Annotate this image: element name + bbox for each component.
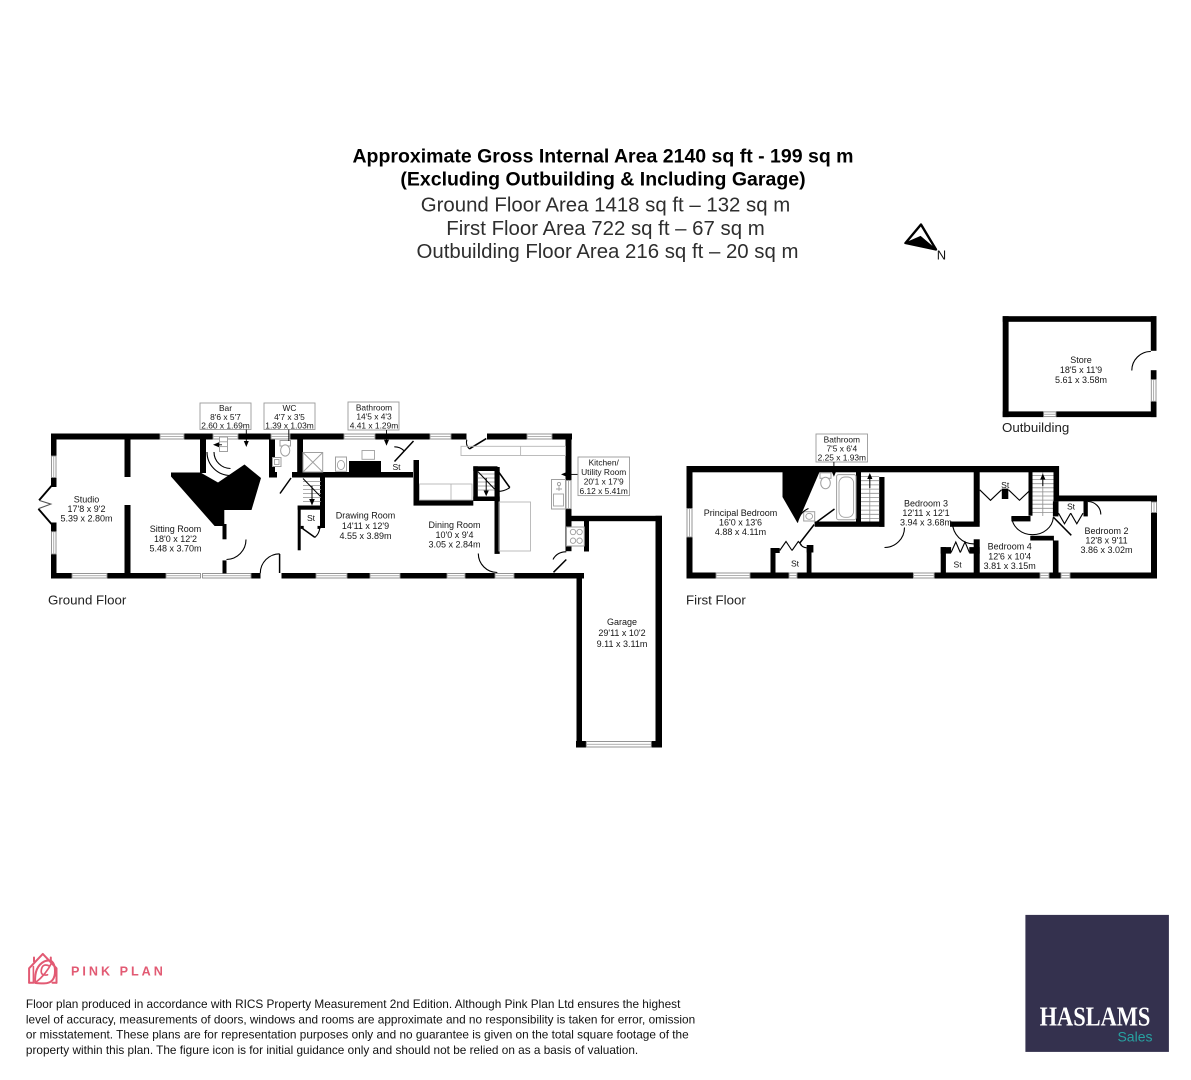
svg-text:Store: Store [1070,355,1092,365]
svg-text:St: St [1067,502,1076,512]
svg-text:2.60 x 1.69m: 2.60 x 1.69m [201,421,249,431]
svg-text:10'0 x 9'4: 10'0 x 9'4 [436,530,474,540]
svg-text:5.39 x 2.80m: 5.39 x 2.80m [60,514,112,524]
svg-text:Ground Floor Area 1418 sq ft –: Ground Floor Area 1418 sq ft – 132 sq m [421,195,791,217]
svg-text:2.25 x 1.93m: 2.25 x 1.93m [818,452,866,462]
svg-text:3.81 x 3.15m: 3.81 x 3.15m [984,561,1036,571]
svg-text:First Floor: First Floor [686,593,746,608]
svg-text:5.48 x 3.70m: 5.48 x 3.70m [149,543,201,553]
svg-text:6.12 x 5.41m: 6.12 x 5.41m [579,486,627,496]
svg-text:20'1 x 17'9: 20'1 x 17'9 [584,477,624,487]
svg-text:St: St [791,558,800,568]
svg-text:Drawing Room: Drawing Room [336,511,396,521]
svg-text:4.55 x 3.89m: 4.55 x 3.89m [339,531,391,541]
svg-text:14'11 x 12'9: 14'11 x 12'9 [342,521,389,531]
svg-text:12'11 x 12'1: 12'11 x 12'1 [902,508,949,518]
svg-text:Kitchen/: Kitchen/ [589,458,620,468]
svg-text:property within this plan. The: property within this plan. The figure ic… [26,1043,638,1057]
svg-text:Outbuilding: Outbuilding [1002,420,1069,435]
svg-text:Sales: Sales [1117,1029,1152,1045]
svg-text:(Excluding Outbuilding & Inclu: (Excluding Outbuilding & Including Garag… [400,169,805,191]
svg-text:Dining Room: Dining Room [428,520,480,530]
svg-text:Garage: Garage [607,617,637,627]
svg-text:5.61 x 3.58m: 5.61 x 3.58m [1055,375,1107,385]
svg-text:St: St [1001,480,1010,490]
svg-text:N: N [937,248,946,263]
svg-text:Utility Room: Utility Room [581,467,626,477]
svg-text:or misstatement. These plans a: or misstatement. These plans are for rep… [26,1028,689,1042]
svg-text:St: St [392,462,401,472]
svg-text:Bedroom 4: Bedroom 4 [988,542,1032,552]
svg-text:Approximate Gross Internal Are: Approximate Gross Internal Area 2140 sq … [352,146,853,168]
svg-text:9.11 x 3.11m: 9.11 x 3.11m [597,639,648,649]
svg-text:17'8 x 9'2: 17'8 x 9'2 [68,504,106,514]
svg-text:Ground Floor: Ground Floor [48,593,127,608]
svg-text:First Floor Area 722 sq ft – 6: First Floor Area 722 sq ft – 67 sq m [446,218,764,240]
svg-text:Studio: Studio [74,495,100,505]
svg-text:Sitting Room: Sitting Room [150,524,202,534]
svg-text:level of accuracy, measurement: level of accuracy, measurements of doors… [26,1012,695,1026]
svg-text:12'6 x 10'4: 12'6 x 10'4 [988,552,1031,562]
svg-text:Principal Bedroom: Principal Bedroom [704,508,778,518]
svg-text:St: St [307,513,316,523]
svg-text:Bedroom 2: Bedroom 2 [1084,526,1128,536]
svg-text:4.88 x 4.11m: 4.88 x 4.11m [715,527,766,537]
svg-text:Outbuilding Floor Area 216 sq: Outbuilding Floor Area 216 sq ft – 20 sq… [417,241,799,263]
svg-text:29'11 x 10'2: 29'11 x 10'2 [598,628,645,638]
svg-text:12'8 x 9'11: 12'8 x 9'11 [1085,536,1127,546]
svg-text:4.41 x 1.29m: 4.41 x 1.29m [350,420,398,430]
svg-text:18'0 x 12'2: 18'0 x 12'2 [154,534,197,544]
svg-text:3.94 x 3.68m: 3.94 x 3.68m [900,518,952,528]
svg-text:1.39 x 1.03m: 1.39 x 1.03m [265,421,313,431]
svg-text:PINK PLAN: PINK PLAN [71,965,166,979]
svg-text:3.86 x 3.02m: 3.86 x 3.02m [1080,545,1132,555]
svg-text:3.05 x 2.84m: 3.05 x 2.84m [428,540,480,550]
svg-text:Floor plan produced in accorda: Floor plan produced in accordance with R… [26,997,681,1011]
svg-text:St: St [954,559,963,569]
svg-text:18'5 x 11'9: 18'5 x 11'9 [1060,365,1102,375]
svg-text:Bedroom 3: Bedroom 3 [904,499,948,509]
